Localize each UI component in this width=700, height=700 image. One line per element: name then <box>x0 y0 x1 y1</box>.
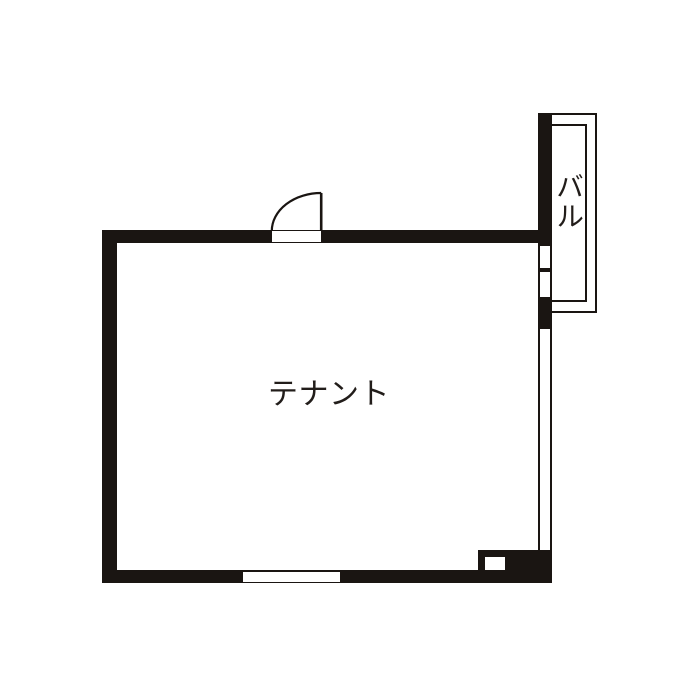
floor-plan: バル テナント <box>0 0 700 700</box>
room-label: テナント <box>229 379 429 411</box>
pipe-shaft-box-inner <box>485 557 506 570</box>
window-right-upper <box>538 246 552 297</box>
door-swing-arc <box>272 193 321 231</box>
wall-top <box>102 230 552 243</box>
balcony-label: バル <box>551 172 583 236</box>
wall-right-upper <box>538 113 552 246</box>
wall-right-mid <box>538 297 552 329</box>
window-bottom <box>243 572 340 581</box>
wall-left <box>102 230 117 583</box>
window-sash-divider <box>540 268 550 271</box>
corner-block <box>506 550 552 584</box>
window-right-lower <box>538 329 552 550</box>
pipe-shaft-box <box>478 550 509 576</box>
door-opening <box>271 230 323 244</box>
